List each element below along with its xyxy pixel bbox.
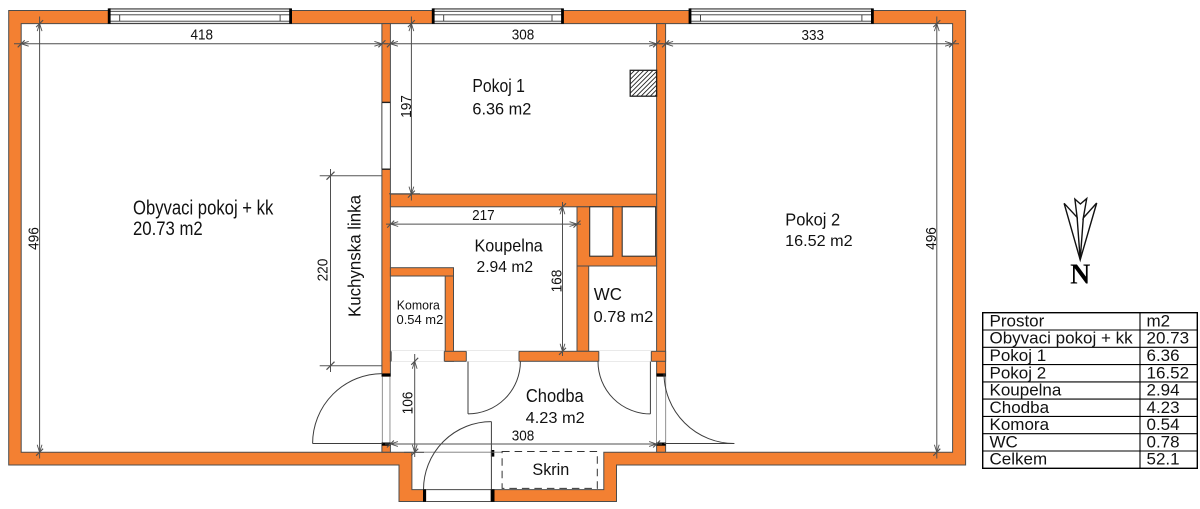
svg-text:52.1: 52.1 xyxy=(1147,450,1180,469)
svg-text:16.52: 16.52 xyxy=(1147,363,1190,382)
svg-text:106: 106 xyxy=(399,392,416,415)
svg-text:Obyvaci pokoj + kk: Obyvaci pokoj + kk xyxy=(133,198,274,220)
svg-text:Koupelna: Koupelna xyxy=(475,236,543,256)
svg-text:Pokoj 1: Pokoj 1 xyxy=(990,346,1047,365)
svg-text:496: 496 xyxy=(26,227,43,250)
svg-text:m2: m2 xyxy=(1147,311,1171,330)
svg-text:0.78: 0.78 xyxy=(1147,432,1180,451)
svg-text:6.36 m2: 6.36 m2 xyxy=(472,101,531,119)
svg-text:308: 308 xyxy=(512,428,535,445)
svg-text:0.78 m2: 0.78 m2 xyxy=(594,309,654,326)
svg-text:418: 418 xyxy=(191,27,214,44)
svg-text:Celkem: Celkem xyxy=(990,450,1048,469)
svg-text:20.73: 20.73 xyxy=(1147,329,1190,348)
svg-text:217: 217 xyxy=(472,207,495,224)
svg-text:Obyvaci pokoj + kk: Obyvaci pokoj + kk xyxy=(990,329,1134,348)
svg-text:N: N xyxy=(1070,260,1090,291)
svg-text:Komora: Komora xyxy=(990,415,1050,434)
svg-text:2.94 m2: 2.94 m2 xyxy=(477,259,534,276)
svg-text:Skrin: Skrin xyxy=(532,460,569,479)
svg-text:333: 333 xyxy=(802,27,825,44)
svg-text:Chodba: Chodba xyxy=(990,398,1050,417)
svg-text:WC: WC xyxy=(990,432,1018,451)
svg-text:220: 220 xyxy=(315,259,332,282)
svg-text:496: 496 xyxy=(923,227,940,250)
svg-text:Chodba: Chodba xyxy=(526,386,585,406)
svg-text:2.94: 2.94 xyxy=(1147,381,1180,400)
svg-text:Koupelna: Koupelna xyxy=(990,381,1062,400)
svg-text:4.23: 4.23 xyxy=(1147,398,1180,417)
svg-text:Prostor: Prostor xyxy=(990,311,1045,330)
svg-text:Kuchynska linka: Kuchynska linka xyxy=(345,195,365,317)
svg-text:16.52 m2: 16.52 m2 xyxy=(785,233,853,250)
svg-text:WC: WC xyxy=(594,284,622,304)
svg-text:Komora: Komora xyxy=(397,298,441,313)
svg-text:4.23 m2: 4.23 m2 xyxy=(526,410,585,427)
svg-text:Pokoj 2: Pokoj 2 xyxy=(785,209,840,229)
svg-text:197: 197 xyxy=(398,95,415,118)
svg-text:308: 308 xyxy=(512,27,535,44)
svg-text:6.36: 6.36 xyxy=(1147,346,1180,365)
svg-text:0.54 m2: 0.54 m2 xyxy=(397,313,444,327)
svg-text:Pokoj 2: Pokoj 2 xyxy=(990,363,1047,382)
svg-text:168: 168 xyxy=(549,270,566,293)
svg-text:Pokoj 1: Pokoj 1 xyxy=(472,76,525,96)
svg-text:0.54: 0.54 xyxy=(1147,415,1180,434)
svg-text:20.73 m2: 20.73 m2 xyxy=(133,219,203,240)
